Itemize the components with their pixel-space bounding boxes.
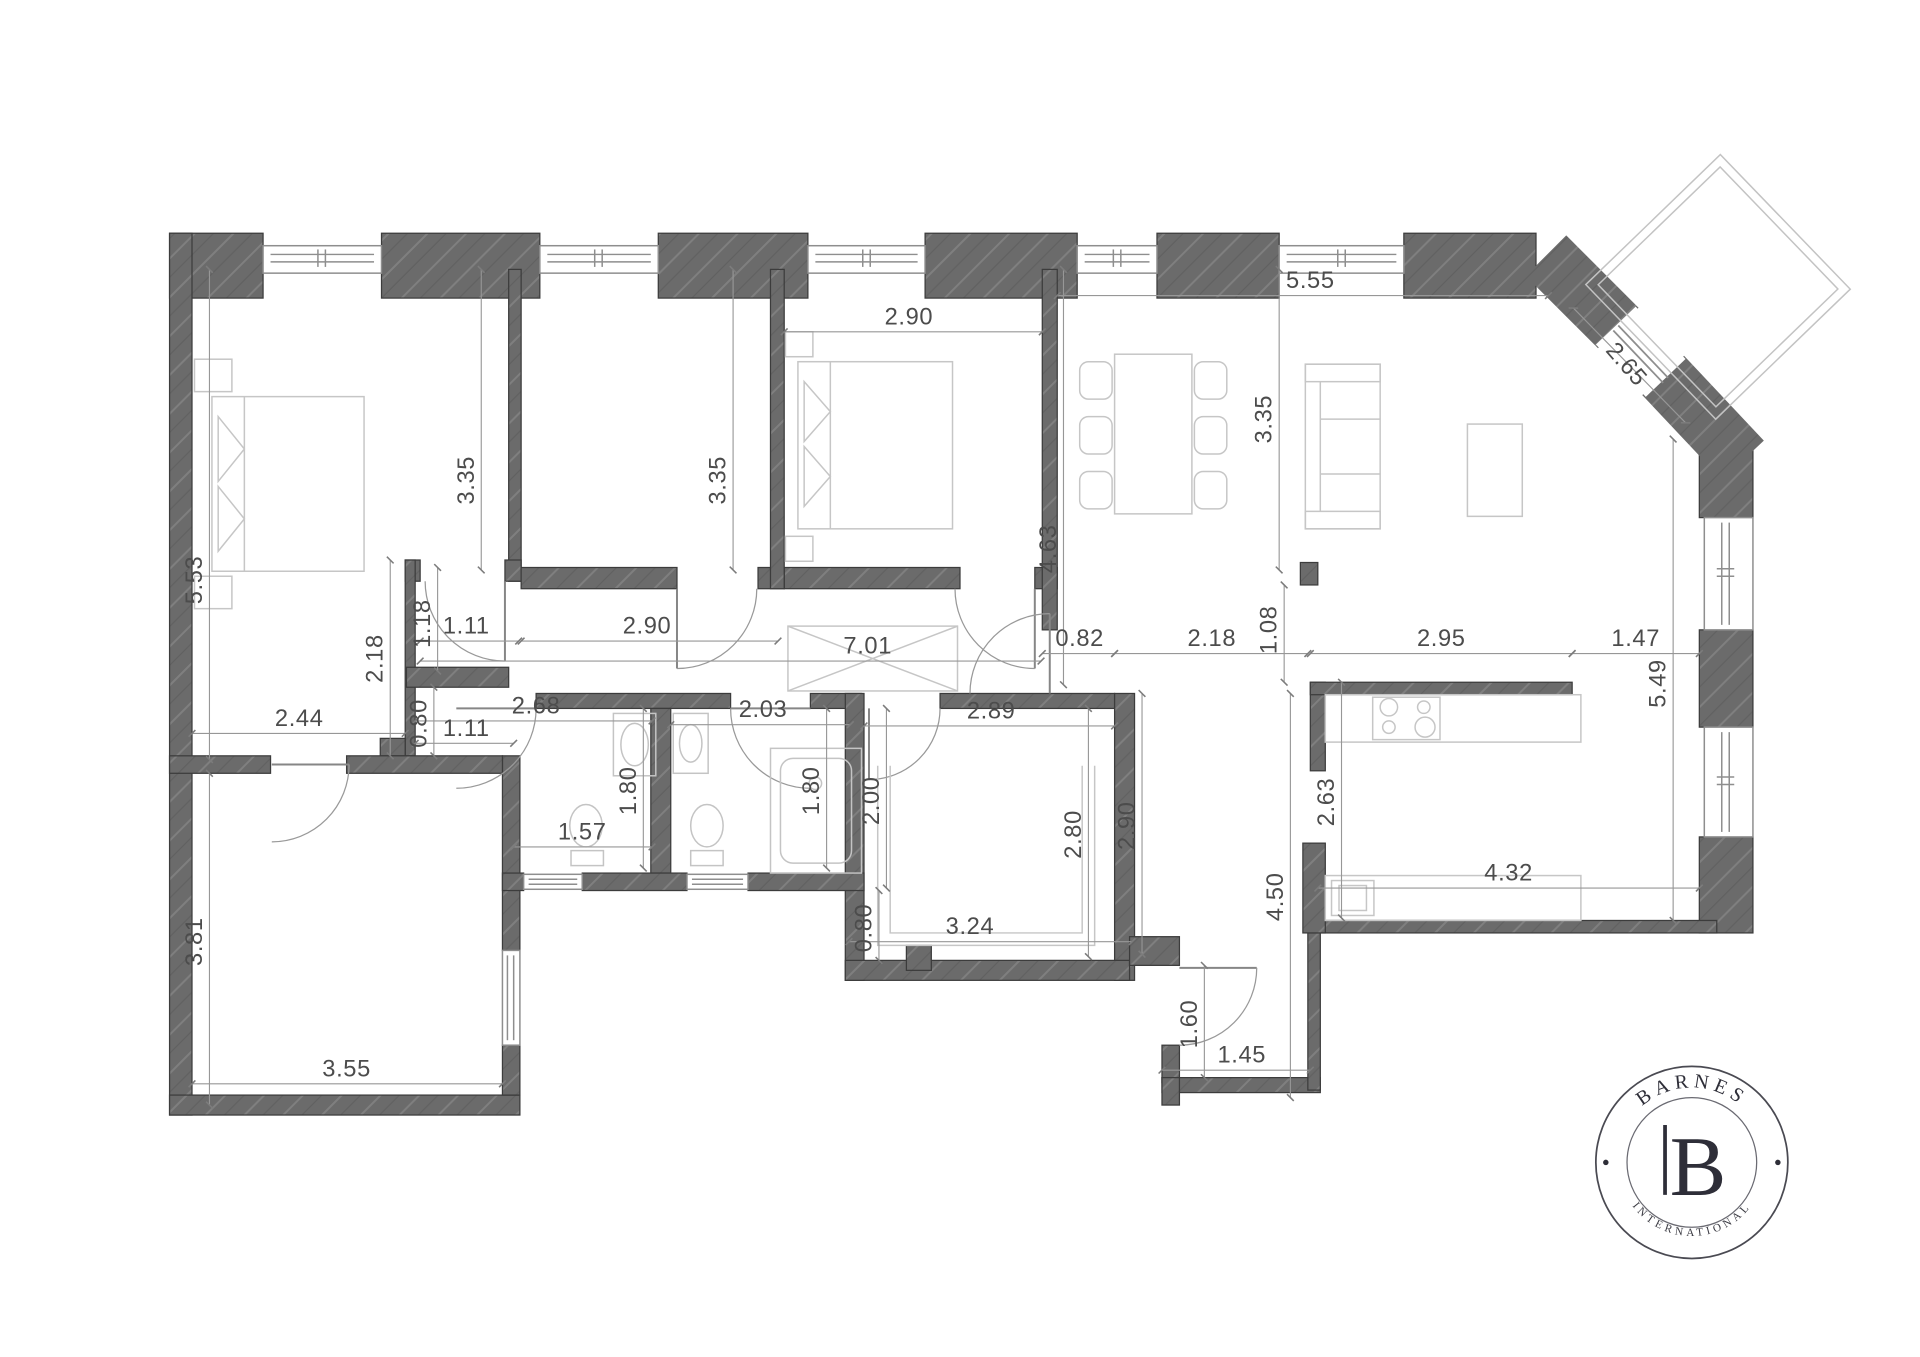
toilet-icon (691, 804, 723, 865)
diagonal-wall (1546, 256, 1743, 461)
dimension-label: 0.80 (406, 699, 432, 748)
window-icon (687, 874, 748, 889)
sink-icon (673, 713, 708, 773)
dimension-label: 3.24 (946, 914, 995, 940)
dimension-label: 0.82 (1055, 626, 1104, 652)
window-icon (524, 874, 583, 889)
door-lower-left-room (272, 765, 349, 842)
dimension-label: 4.32 (1484, 861, 1533, 887)
interior-walls (170, 269, 1573, 1105)
door-living-room (970, 614, 1050, 694)
floor-plan-page: BARNES INTERNATIONAL B 2.905.552.653.353… (0, 0, 1920, 1357)
dimension-label: 3.81 (182, 917, 208, 966)
dimension-label: 1.80 (799, 766, 825, 815)
dimension-label: 2.80 (1061, 810, 1087, 859)
dimension-label: 2.89 (967, 698, 1016, 724)
dimension-label: 1.18 (410, 599, 436, 648)
dimension-label: 2.03 (739, 697, 788, 723)
floor-plan-drawing: BARNES INTERNATIONAL B 2.905.552.653.353… (0, 0, 1920, 1357)
dimension-label: 2.00 (859, 776, 885, 825)
dimension-label: 5.53 (182, 556, 208, 605)
logo-monogram-bar (1663, 1125, 1667, 1195)
dimension-label: 1.60 (1177, 1000, 1203, 1049)
dimension-label: 1.11 (443, 614, 490, 640)
logo-dot-left (1603, 1160, 1608, 1165)
window-icon (263, 246, 381, 273)
door-middle-room (869, 708, 940, 779)
dining-table (1080, 354, 1227, 514)
dimension-label: 1.11 (443, 716, 490, 742)
window-icon (1077, 246, 1157, 273)
window-icon (808, 246, 925, 273)
dimension-label: 2.44 (275, 706, 324, 732)
kitchen-counter-bottom (1325, 876, 1581, 921)
coffee-table (1467, 424, 1522, 516)
logo-monogram: B (1670, 1120, 1727, 1214)
dimension-label: 2.18 (363, 634, 389, 683)
door-bedroom2 (677, 589, 757, 669)
window-icon (1704, 727, 1753, 837)
kitchen-counter-top (1325, 695, 1581, 742)
window-icon (540, 246, 658, 273)
dimension-label: 1.45 (1217, 1043, 1266, 1069)
sofa (1305, 364, 1380, 529)
dimension-label: 2.18 (1188, 626, 1237, 652)
dimension-label: 4.50 (1263, 872, 1289, 921)
dimension-label: 3.35 (454, 456, 480, 505)
dimension-label: 4.63 (1036, 524, 1062, 573)
door-bedroom3 (955, 589, 1035, 669)
dimension-label: 5.49 (1646, 659, 1672, 708)
dimension-label: 3.35 (1252, 395, 1278, 444)
barnes-logo: BARNES INTERNATIONAL B (1596, 1066, 1788, 1258)
dimension-label: 2.90 (885, 304, 934, 330)
dimension-label: 2.95 (1417, 626, 1466, 652)
dimension-label: 1.47 (1611, 626, 1660, 652)
bed-bedroom1 (194, 359, 364, 608)
dimension-label: 2.90 (623, 614, 672, 640)
dimension-label: 3.55 (322, 1056, 371, 1082)
dimension-label: 1.80 (616, 766, 642, 815)
dimension-label: 7.01 (843, 634, 892, 660)
window-icon (502, 950, 519, 1045)
dimension-label: 1.08 (1257, 606, 1283, 655)
logo-dot-right (1775, 1160, 1780, 1165)
dimension-label: 5.55 (1286, 268, 1335, 294)
bed-bedroom3 (785, 332, 952, 561)
window-icon (1704, 518, 1753, 630)
dimension-label: 2.63 (1314, 778, 1340, 827)
dimension-label: 0.80 (851, 904, 877, 953)
dimension-label: 1.57 (558, 819, 607, 845)
dimension-label: 2.90 (1115, 801, 1141, 850)
dimension-label: 3.35 (706, 456, 732, 505)
dimension-label: 2.68 (512, 693, 561, 719)
